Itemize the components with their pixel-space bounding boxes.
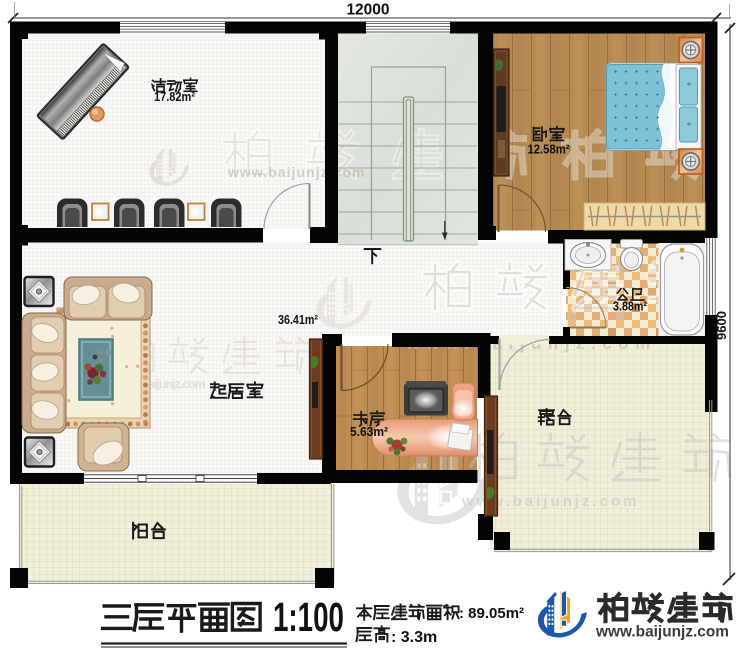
svg-text:: 3.3m: : 3.3m bbox=[391, 629, 437, 646]
svg-text:36.41m²: 36.41m² bbox=[278, 312, 319, 327]
svg-text:3.88m²: 3.88m² bbox=[613, 300, 647, 314]
svg-text:5.63m²: 5.63m² bbox=[350, 425, 388, 439]
svg-text:www.baijunjz.com: www.baijunjz.com bbox=[227, 164, 366, 180]
svg-text:: 89.05m²: : 89.05m² bbox=[459, 605, 524, 622]
svg-text:1:100: 1:100 bbox=[273, 594, 344, 640]
svg-text:www.baijunjz.com: www.baijunjz.com bbox=[595, 624, 729, 641]
svg-text:12.58m²: 12.58m² bbox=[528, 142, 571, 157]
svg-text:17.82m²: 17.82m² bbox=[154, 89, 196, 104]
svg-text:9600: 9600 bbox=[714, 311, 729, 340]
svg-text:12000: 12000 bbox=[346, 2, 389, 19]
